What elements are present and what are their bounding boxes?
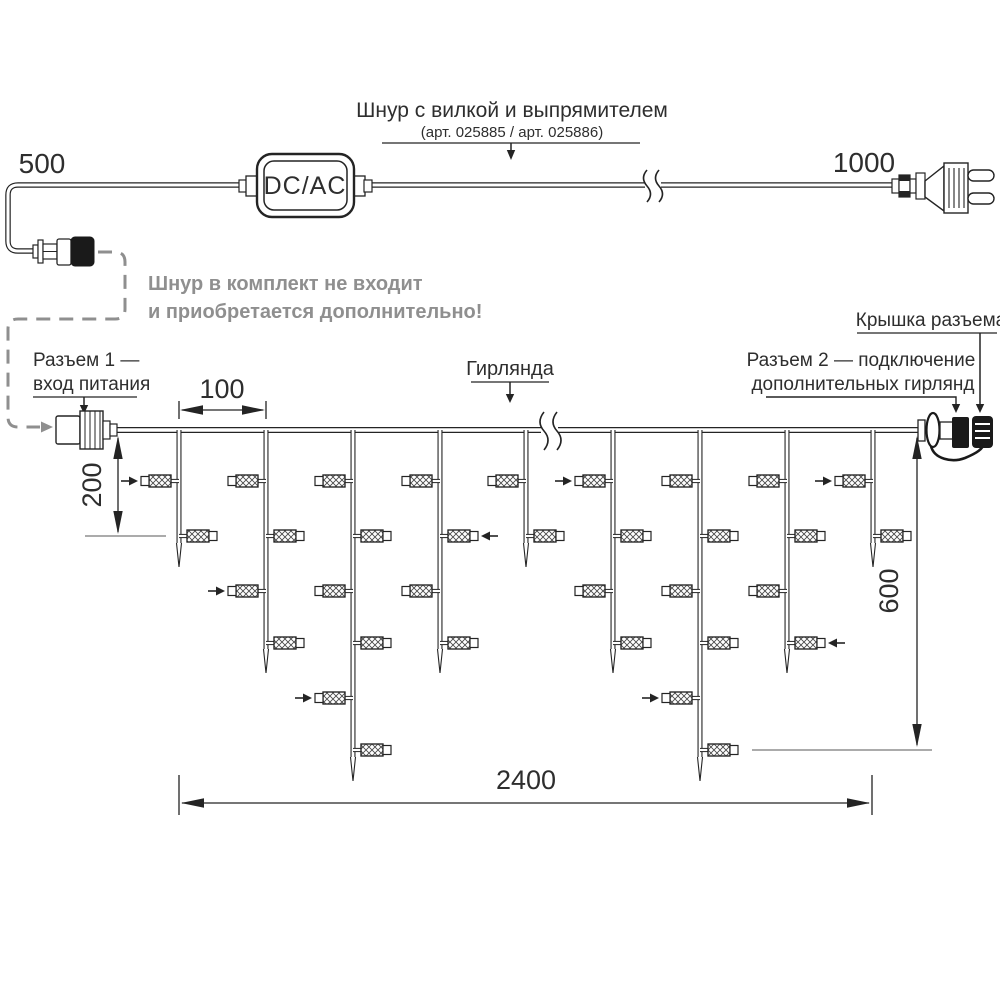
- led-bulb: [700, 744, 738, 756]
- cord-note-line2: и приобретается дополнительно!: [148, 301, 482, 323]
- led-bulb: [749, 475, 787, 487]
- connector2-label-line2: дополнительных гирлянд: [751, 374, 974, 395]
- led-bulb: [613, 530, 651, 542]
- cord-callout-arrow: [507, 143, 515, 160]
- flash-led-arrow-icon: [555, 477, 572, 486]
- led-bulb: [266, 637, 304, 649]
- garland-diagram-svg: Шнур с вилкой и выпрямителем (арт. 02588…: [0, 0, 1000, 1000]
- led-bulb: [700, 530, 738, 542]
- garland-drop: [488, 430, 564, 567]
- led-bulb: [315, 692, 353, 704]
- garland-label: Гирлянда: [466, 358, 555, 403]
- garland-wire-break: [540, 412, 561, 450]
- garland-drop: [555, 430, 651, 673]
- cord-note-line1: Шнур в комплект не входит: [148, 273, 423, 295]
- dim-100-label: 100: [199, 374, 244, 404]
- dim-200-label: 200: [77, 462, 107, 507]
- flash-led-arrow-icon: [828, 639, 845, 648]
- cord-callout-title: Шнур с вилкой и выпрямителем: [356, 99, 668, 122]
- plug-prong: [968, 170, 994, 181]
- cord-callout-articles: (арт. 025885 / арт. 025886): [421, 124, 603, 141]
- led-bulb: [353, 637, 391, 649]
- led-bulb: [315, 585, 353, 597]
- led-bulb: [266, 530, 304, 542]
- led-bulb: [835, 475, 873, 487]
- cord-output-connector: [33, 237, 94, 266]
- led-bulb: [228, 475, 266, 487]
- led-bulb: [613, 637, 651, 649]
- led-bulb: [873, 530, 911, 542]
- led-bulb: [749, 585, 787, 597]
- flash-led-arrow-icon: [815, 477, 832, 486]
- led-bulb: [179, 530, 217, 542]
- garland-drop: [208, 430, 304, 673]
- led-bulb: [440, 530, 478, 542]
- led-bulb: [787, 530, 825, 542]
- cord-right-wire: [370, 170, 892, 202]
- dcac-label: DC/AC: [264, 172, 347, 200]
- garland-drop: [749, 430, 845, 673]
- garland-drop: [121, 430, 217, 567]
- dim-2400-label: 2400: [496, 765, 556, 795]
- led-bulb: [662, 692, 700, 704]
- connector-cap-icon: [972, 416, 993, 448]
- dim-drop-spacing: 100: [179, 374, 266, 419]
- led-bulb: [526, 530, 564, 542]
- led-bulb: [787, 637, 825, 649]
- connector2-label-line1: Разъем 2 — подключение: [747, 350, 976, 371]
- garland-drop: [295, 430, 391, 781]
- led-bulb: [402, 585, 440, 597]
- dcac-adapter: DC/AC: [239, 154, 372, 217]
- cap-label-text: Крышка разъема: [856, 310, 1000, 331]
- connector1-label-line2: вход питания: [33, 374, 150, 395]
- garland-drop: [815, 430, 911, 567]
- mains-plug: [892, 163, 994, 213]
- led-bulb: [662, 585, 700, 597]
- led-bulb: [575, 585, 613, 597]
- dashed-arrow-icon: [41, 422, 53, 433]
- garland-drop: [402, 430, 498, 673]
- dashed-connection-path: [8, 252, 125, 433]
- diagram-page: Шнур с вилкой и выпрямителем (арт. 02588…: [0, 0, 1000, 1000]
- led-bulb: [700, 637, 738, 649]
- flash-led-arrow-icon: [642, 694, 659, 703]
- led-bulb: [141, 475, 179, 487]
- garland-section: Разъем 1 — вход питания Гирлянда Разъем …: [33, 310, 1000, 815]
- led-bulb: [228, 585, 266, 597]
- drops-layer: [121, 430, 911, 781]
- garland-label-text: Гирлянда: [466, 358, 555, 380]
- led-bulb: [662, 475, 700, 487]
- connector2-extension: [918, 413, 993, 460]
- connector2-body: [952, 417, 969, 448]
- dim-total-width: 2400: [179, 765, 872, 815]
- flash-led-arrow-icon: [481, 532, 498, 541]
- flash-led-arrow-icon: [208, 587, 225, 596]
- plug-prong: [968, 193, 994, 204]
- dim-600-label: 600: [874, 568, 904, 613]
- led-bulb: [575, 475, 613, 487]
- cord-left-length-label: 500: [19, 148, 66, 179]
- led-bulb: [402, 475, 440, 487]
- led-bulb: [440, 637, 478, 649]
- garland-drop: [642, 430, 738, 781]
- led-bulb: [353, 530, 391, 542]
- connector2-label: Разъем 2 — подключение дополнительных ги…: [747, 350, 976, 413]
- flash-led-arrow-icon: [121, 477, 138, 486]
- connector1-power-input: [56, 411, 117, 449]
- led-bulb: [488, 475, 526, 487]
- flash-led-arrow-icon: [295, 694, 312, 703]
- connector1-label: Разъем 1 — вход питания: [33, 350, 150, 414]
- led-bulb: [315, 475, 353, 487]
- cord-right-length-label: 1000: [833, 147, 895, 178]
- led-bulb: [353, 744, 391, 756]
- connector1-label-line1: Разъем 1 —: [33, 350, 139, 371]
